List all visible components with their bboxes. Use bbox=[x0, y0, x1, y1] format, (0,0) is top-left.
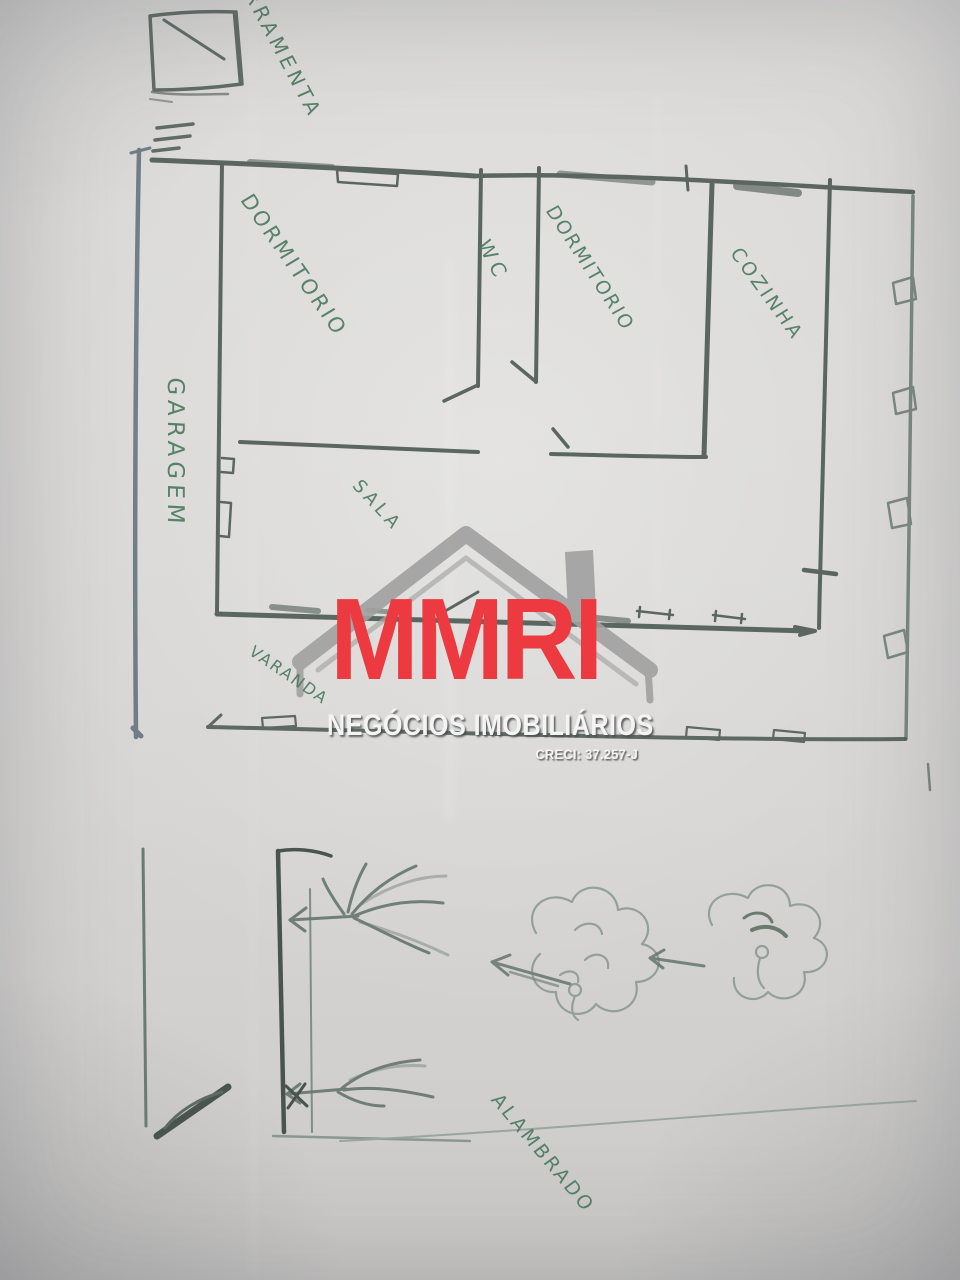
right-boundary-line bbox=[884, 196, 930, 790]
watermark-brand: MMRI bbox=[330, 581, 600, 697]
boundary-hatch-marks bbox=[153, 124, 193, 151]
watermark-license: CRECI: 37.257-J bbox=[478, 747, 638, 762]
palm-plant-upper bbox=[290, 864, 448, 955]
garden-sketch bbox=[143, 849, 916, 1141]
floor-plan-photo: FERRAMENTA DORMITORIO WC DORMITORIO COZI… bbox=[0, 0, 960, 1280]
left-boundary-line bbox=[131, 148, 150, 737]
palm-plant-lower bbox=[287, 1060, 433, 1106]
watermark-subtitle: NEGÓCIOS IMOBILIÁRIOS bbox=[327, 708, 654, 744]
bush-sketch-left bbox=[492, 888, 659, 1020]
label-garagem: GARAGEM bbox=[162, 377, 188, 530]
bush-sketch-right bbox=[650, 885, 827, 999]
tool-shed-outline bbox=[150, 12, 242, 102]
